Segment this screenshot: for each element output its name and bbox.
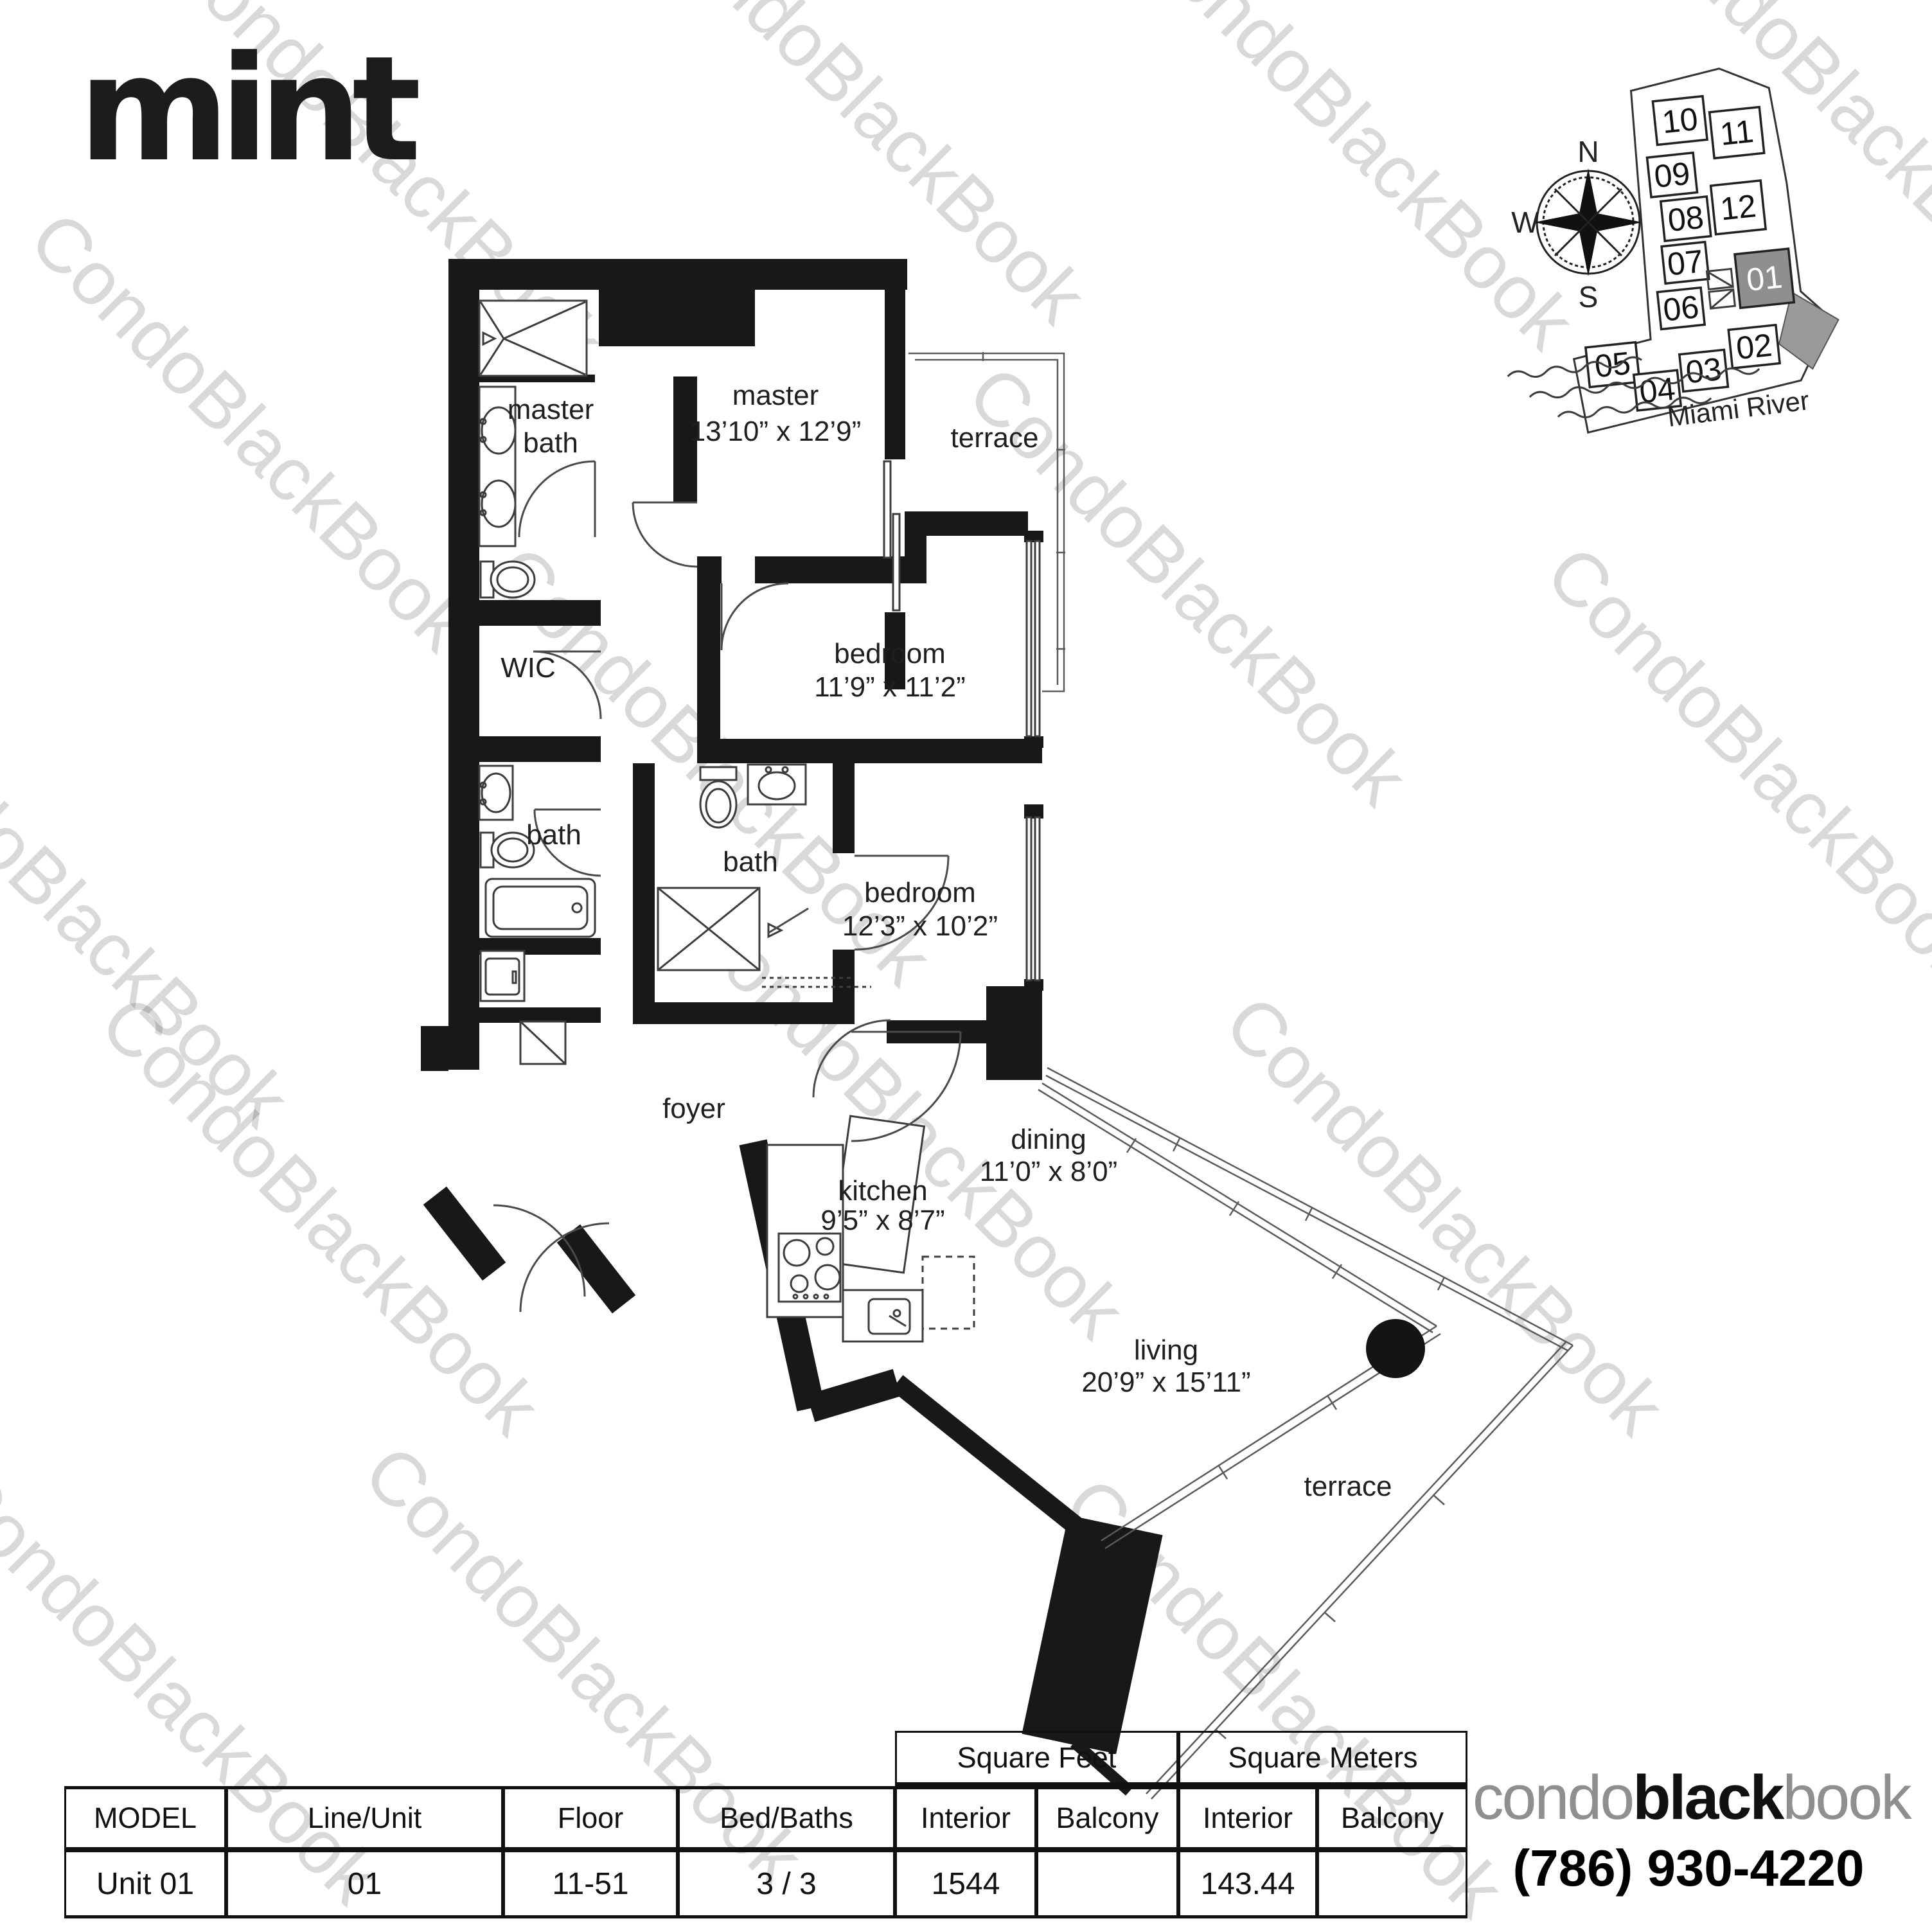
room-label-terrace-top: terrace — [951, 422, 1039, 454]
cell-sf-interior: 1544 — [895, 1850, 1036, 1918]
toilet-icon — [481, 562, 535, 598]
room-dims-kitchen: 9’5” x 8’7” — [820, 1205, 944, 1236]
cell-sm-balcony — [1317, 1850, 1467, 1918]
room-label-foyer: foyer — [662, 1093, 725, 1124]
col-header-bed-baths: Bed/Baths — [678, 1786, 895, 1850]
logo-part-condo: condo — [1473, 1762, 1633, 1832]
room-dims-master: 13’10” x 12’9” — [690, 416, 862, 447]
cell-sf-balcony — [1036, 1850, 1178, 1918]
room-label-master-bath-2: bath — [523, 427, 578, 459]
cell-sm-interior: 143.44 — [1178, 1850, 1317, 1918]
room-dims-bedroom-a: 11’9” x 11’2” — [814, 671, 966, 703]
dishwasher-icon — [923, 1257, 974, 1329]
table-header-square-meters: Square Meters — [1178, 1731, 1467, 1786]
col-header-sm-balcony: Balcony — [1317, 1786, 1467, 1850]
cell-floor: 11-51 — [503, 1850, 678, 1918]
sink-icon — [748, 765, 806, 804]
cell-bed-baths: 3 / 3 — [678, 1850, 895, 1918]
table-header-square-feet: Square Feet — [895, 1731, 1178, 1786]
keyplan-unit-label: 11 — [1718, 113, 1755, 152]
watermark-text: CondoBlackBook — [1209, 980, 1681, 1451]
watermark-layer: CondoBlackBook CondoBlackBook CondoBlack… — [0, 0, 1932, 1930]
bathtub-icon — [486, 879, 595, 937]
keyplan-unit-label-highlighted: 01 — [1745, 258, 1784, 298]
unit-plan: master bath master 13’10” x 12’9” terrac… — [421, 259, 1573, 1799]
room-label-living: living — [1134, 1334, 1198, 1366]
compass-north-label: N — [1577, 135, 1599, 168]
room-label-master: master — [732, 380, 819, 411]
keyplan-unit-label: 05 — [1593, 345, 1632, 385]
watermark-text: CondoBlackBook — [85, 980, 556, 1451]
condoblackbook-logo: condoblackbook — [1473, 1762, 1904, 1834]
floorplan-drawing: CondoBlackBook CondoBlackBook CondoBlack… — [0, 0, 1932, 1930]
room-label-kitchen: kitchen — [838, 1175, 927, 1207]
room-label-bath-a: bath — [526, 819, 581, 851]
unit-summary-table: Square Feet Square Meters MODEL Line/Uni… — [64, 1731, 1467, 1918]
room-label-dining: dining — [1011, 1124, 1086, 1155]
building-logo: mint — [78, 37, 411, 182]
keyplan-unit-label: 06 — [1662, 288, 1701, 328]
room-dims-bedroom-b: 12’3” x 10’2” — [842, 910, 998, 942]
col-header-sm-interior: Interior — [1178, 1786, 1317, 1850]
col-header-model: MODEL — [64, 1786, 226, 1850]
floorplan-page: CondoBlackBook CondoBlackBook CondoBlack… — [0, 0, 1932, 1930]
keyplan-unit-label: 02 — [1735, 327, 1774, 367]
col-header-floor: Floor — [503, 1786, 678, 1850]
room-label-wic: WIC — [501, 652, 556, 684]
room-label-bedroom-b: bedroom — [864, 877, 976, 908]
room-label-bath-b: bath — [723, 846, 778, 878]
keyplan-unit-label: 08 — [1666, 199, 1705, 239]
keyplan-unit-label: 07 — [1665, 243, 1705, 283]
toilet-icon — [700, 767, 736, 828]
room-label-bedroom-a: bedroom — [834, 638, 946, 669]
col-header-line-unit: Line/Unit — [226, 1786, 503, 1850]
condoblackbook-footer: condoblackbook (786) 930-4220 — [1473, 1762, 1904, 1898]
room-label-terrace-bottom: terrace — [1304, 1471, 1392, 1502]
room-label-master-bath: master — [508, 394, 594, 425]
shower-icon — [479, 301, 587, 376]
logo-part-book: book — [1782, 1762, 1910, 1832]
keyplan-unit-label: 12 — [1719, 188, 1758, 227]
col-header-sf-balcony: Balcony — [1036, 1786, 1178, 1850]
col-header-sf-interior: Interior — [895, 1786, 1036, 1850]
closet-icon — [520, 1022, 565, 1064]
keyplan: N W E S 10 11 09 — [1507, 59, 1848, 451]
room-dims-dining: 11’0” x 8’0” — [980, 1156, 1117, 1187]
keyplan-unit-label: 03 — [1684, 351, 1723, 391]
keyplan-unit-label: 09 — [1653, 155, 1692, 195]
cell-model: Unit 01 — [64, 1850, 226, 1918]
compass-south-label: S — [1579, 280, 1599, 314]
cell-line-unit: 01 — [226, 1850, 503, 1918]
watermark-text: CondoBlackBook — [1119, 0, 1591, 366]
compass-west-label: W — [1511, 206, 1539, 239]
phone-number: (786) 930-4220 — [1473, 1839, 1904, 1898]
washer-icon — [481, 951, 524, 1001]
watermark-text: CondoBlackBook — [14, 196, 486, 668]
logo-part-black: black — [1633, 1762, 1782, 1832]
watermark-text: CondoBlackBook — [1530, 530, 1932, 1002]
keyplan-unit-label: 10 — [1660, 101, 1699, 141]
room-dims-living: 20’9” x 15’11” — [1081, 1367, 1250, 1398]
table-spacer — [64, 1731, 895, 1786]
structural-column — [1366, 1319, 1425, 1378]
sink-icon — [479, 766, 513, 820]
